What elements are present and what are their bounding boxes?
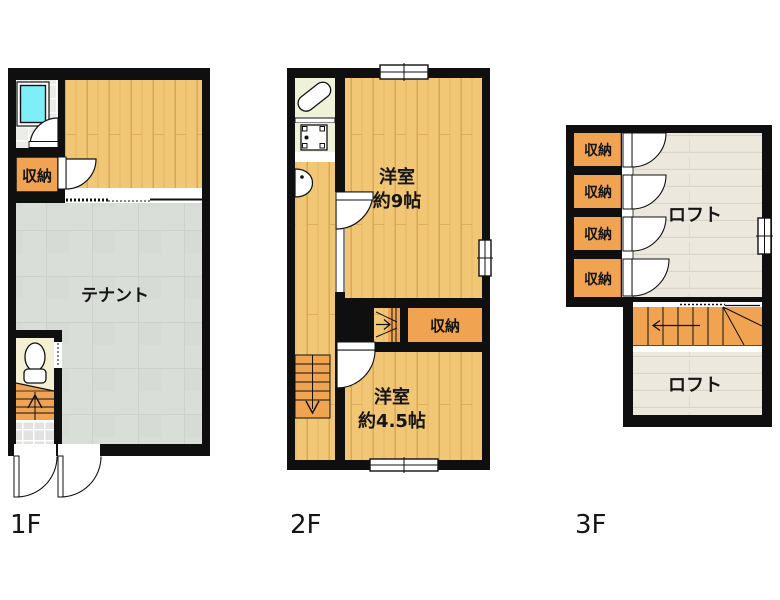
western-room-9-label: 洋室 — [379, 166, 415, 188]
storage-label-2f: 収納 — [430, 317, 460, 335]
western-room-4-5-label: 洋室 — [374, 386, 410, 408]
loft-upper-label: ロフト — [668, 205, 722, 226]
stairs-winder-3f — [633, 307, 762, 352]
wall — [335, 68, 345, 192]
entry-door-arc — [14, 456, 57, 497]
tenant-label: テナント — [81, 286, 149, 306]
wall — [375, 342, 482, 352]
stairs-up-2f — [373, 308, 400, 342]
entry-tile-floor — [16, 423, 54, 445]
floor-plan-drawing: 収納 テナント — [0, 0, 780, 600]
western-room-9-floor — [345, 78, 482, 298]
wall — [8, 148, 65, 157]
storage-label-3f-3: 収納 — [584, 226, 612, 243]
window — [370, 457, 438, 473]
western-room-9-size: 約9帖 — [373, 190, 422, 212]
stairs-down-2f — [295, 355, 330, 418]
storage-label-3f-4: 収納 — [584, 271, 612, 288]
opening — [295, 152, 335, 162]
wall — [400, 308, 408, 342]
partition-door — [295, 118, 335, 123]
floor-label-3f: 3F — [575, 510, 607, 540]
window — [477, 240, 493, 276]
floor-label-2f: 2F — [290, 510, 322, 540]
entry-opening — [14, 444, 56, 456]
loft-lower-label: ロフト — [668, 375, 722, 396]
floor-1f-plan: 収納 テナント — [8, 68, 210, 540]
storage-label-3f-2: 収納 — [584, 184, 612, 201]
western-room-4-5-size: 約4.5帖 — [358, 410, 426, 432]
entry-door-arc — [58, 456, 101, 497]
storage-label-1f: 収納 — [22, 167, 52, 185]
floor-2f-plan: 洋室 約9帖 収納 洋室 約4.5帖 — [287, 63, 493, 540]
storage-label-3f-1: 収納 — [584, 142, 612, 159]
entry-opening — [58, 444, 100, 456]
window — [756, 218, 773, 254]
wall — [8, 330, 62, 338]
floor-3f-plan: 収納 収納 収納 収納 ロフト — [566, 125, 773, 540]
washing-machine-icon — [301, 125, 327, 150]
wall — [58, 68, 65, 157]
bathtub-icon — [17, 82, 49, 126]
window — [380, 63, 428, 81]
floor-plan-page: 収納 テナント — [0, 0, 780, 600]
wall — [345, 298, 482, 308]
toilet-icon — [24, 343, 46, 383]
floor-label-1f: 1F — [10, 510, 42, 540]
wall — [8, 192, 65, 200]
